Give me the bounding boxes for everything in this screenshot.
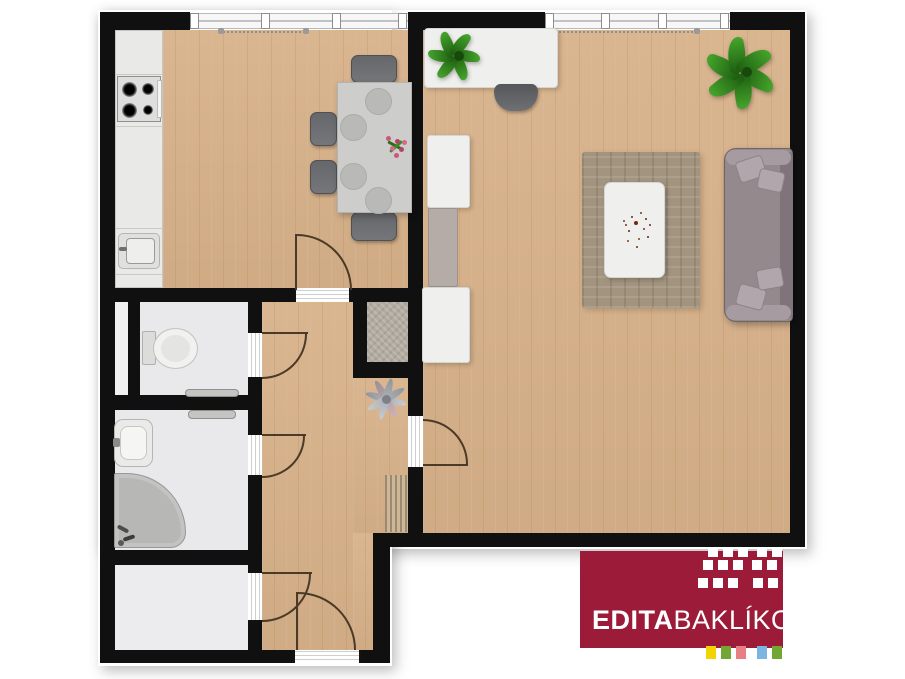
wall-segment xyxy=(373,533,390,663)
wall-segment xyxy=(248,623,262,663)
logo-pattern-square xyxy=(753,578,763,588)
window-post xyxy=(398,13,407,29)
logo-pattern-square xyxy=(752,560,762,570)
logo-last-name: BAKLÍKOVÁ xyxy=(674,605,830,635)
logo-pattern-square xyxy=(733,560,743,570)
washbasin-bowl xyxy=(120,426,147,460)
counter-seam xyxy=(116,228,162,229)
basin-faucet xyxy=(113,438,120,447)
wall-cabinet-low xyxy=(428,208,458,287)
table-flowers xyxy=(384,134,410,160)
living-room-window xyxy=(545,13,730,29)
sofa-pillow xyxy=(755,266,784,291)
logo-accent-square-pink xyxy=(736,646,746,659)
wall-segment xyxy=(100,650,292,663)
wc-door-frame xyxy=(248,330,262,380)
wall-segment xyxy=(390,533,805,547)
counter-seam xyxy=(116,274,162,275)
window-post xyxy=(601,13,610,29)
wall-segment xyxy=(408,470,423,533)
logo-pattern-square xyxy=(703,560,713,570)
curtain-hook xyxy=(694,28,700,34)
logo-pattern-square xyxy=(713,578,723,588)
installation-shaft xyxy=(115,302,128,395)
coffee-table xyxy=(604,182,665,278)
logo-pattern-square xyxy=(772,547,782,557)
bathroom-shelf xyxy=(188,410,236,419)
stove-burner xyxy=(143,105,153,115)
storage-room-door-frame xyxy=(248,570,262,623)
wall-cabinet xyxy=(427,135,470,208)
sofa xyxy=(724,148,793,322)
brand-logo: EDITABAKLÍKOVÁ xyxy=(580,551,783,648)
sink-faucet xyxy=(119,247,127,251)
logo-first-name: EDITA xyxy=(592,605,674,635)
sink-basin xyxy=(126,238,155,264)
plate xyxy=(340,163,367,190)
dining-chair xyxy=(310,112,337,146)
logo-pattern-square xyxy=(708,547,718,557)
plate xyxy=(365,88,392,115)
logo-pattern-square xyxy=(767,560,777,570)
wall-cabinet xyxy=(422,287,470,363)
closet-niche xyxy=(367,302,408,362)
logo-pattern-square xyxy=(718,560,728,570)
dining-to-hall-door-frame xyxy=(293,288,352,302)
stove-burner xyxy=(122,103,137,118)
stove xyxy=(117,76,161,122)
dining-chair xyxy=(351,55,397,83)
wc-radiator xyxy=(185,389,239,397)
window-post xyxy=(332,13,341,29)
plate xyxy=(365,187,392,214)
floor-storage-room xyxy=(115,565,248,650)
floor-plan-canvas: EDITABAKLÍKOVÁ xyxy=(0,0,905,679)
logo-accent-square-blue xyxy=(757,646,767,659)
living-room-door-frame xyxy=(408,413,423,470)
logo-pattern-square xyxy=(768,578,778,588)
curtain-hook xyxy=(303,28,309,34)
floor-hallway xyxy=(353,533,373,650)
logo-pattern-square xyxy=(738,547,748,557)
logo-pattern-square xyxy=(757,547,767,557)
wall-segment xyxy=(248,302,262,330)
window-post xyxy=(261,13,270,29)
logo-accent-square-green xyxy=(772,646,782,659)
desk-plant xyxy=(434,31,484,81)
curtain-hook xyxy=(218,28,224,34)
logo-accent-square-yellow xyxy=(706,646,716,659)
toilet-bowl-inner xyxy=(161,335,190,362)
entrance-door-frame xyxy=(292,650,362,663)
window-post xyxy=(658,13,667,29)
curtain-rail xyxy=(223,31,305,33)
fan-hub xyxy=(382,395,391,404)
stove-burner xyxy=(122,82,137,97)
floor-plant xyxy=(712,34,782,110)
plate xyxy=(340,114,367,141)
wall-segment xyxy=(353,362,423,378)
doormat xyxy=(385,475,408,532)
dining-chair xyxy=(310,160,337,194)
tub-drain xyxy=(118,540,124,546)
counter-seam xyxy=(116,74,162,75)
logo-pattern-square xyxy=(723,547,733,557)
wall-segment xyxy=(128,302,140,395)
window-post xyxy=(545,13,554,29)
bathroom-door-frame xyxy=(248,432,262,478)
window-post xyxy=(720,13,729,29)
wall-segment xyxy=(115,395,262,410)
window-post xyxy=(190,13,199,29)
wall-segment xyxy=(115,550,262,565)
ceiling-fan xyxy=(364,377,408,421)
dining-chair xyxy=(351,212,397,241)
logo-text: EDITABAKLÍKOVÁ xyxy=(592,607,830,634)
kitchen-window xyxy=(190,13,408,29)
counter-seam xyxy=(116,126,162,127)
logo-pattern-square xyxy=(728,578,738,588)
wall-segment xyxy=(115,288,293,302)
logo-pattern-square xyxy=(698,578,708,588)
logo-accent-square-green xyxy=(721,646,731,659)
wall-segment xyxy=(100,12,115,663)
table-decor xyxy=(634,221,638,225)
living-room-door-leaf xyxy=(423,464,468,466)
stove-controls xyxy=(157,80,162,118)
stove-burner xyxy=(142,83,154,95)
flower-blossoms xyxy=(386,136,391,141)
